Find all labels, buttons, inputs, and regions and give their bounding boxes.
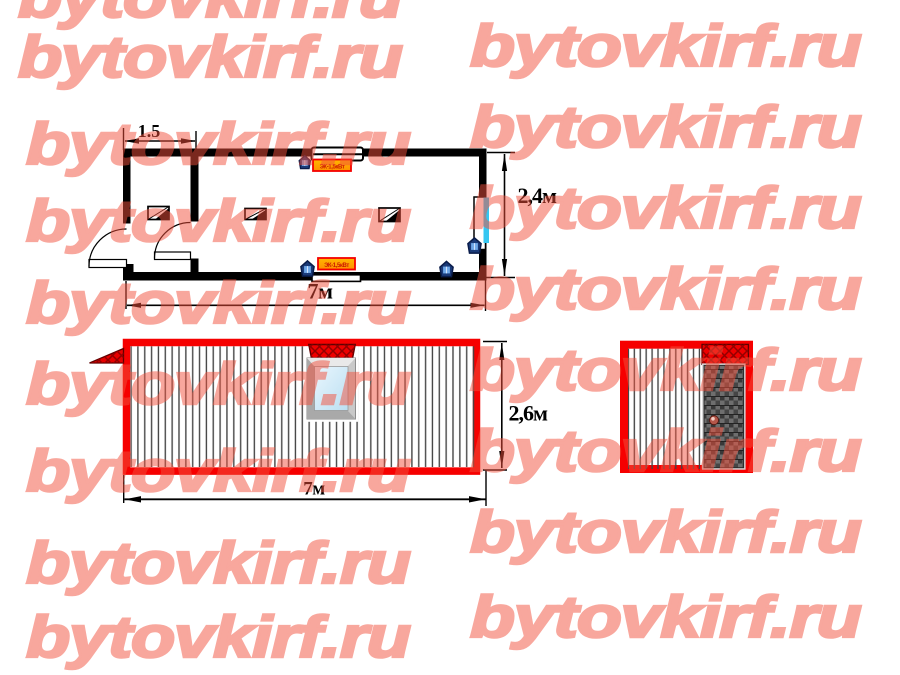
svg-text:ЭК-1,5кВт: ЭК-1,5кВт [324, 263, 349, 269]
